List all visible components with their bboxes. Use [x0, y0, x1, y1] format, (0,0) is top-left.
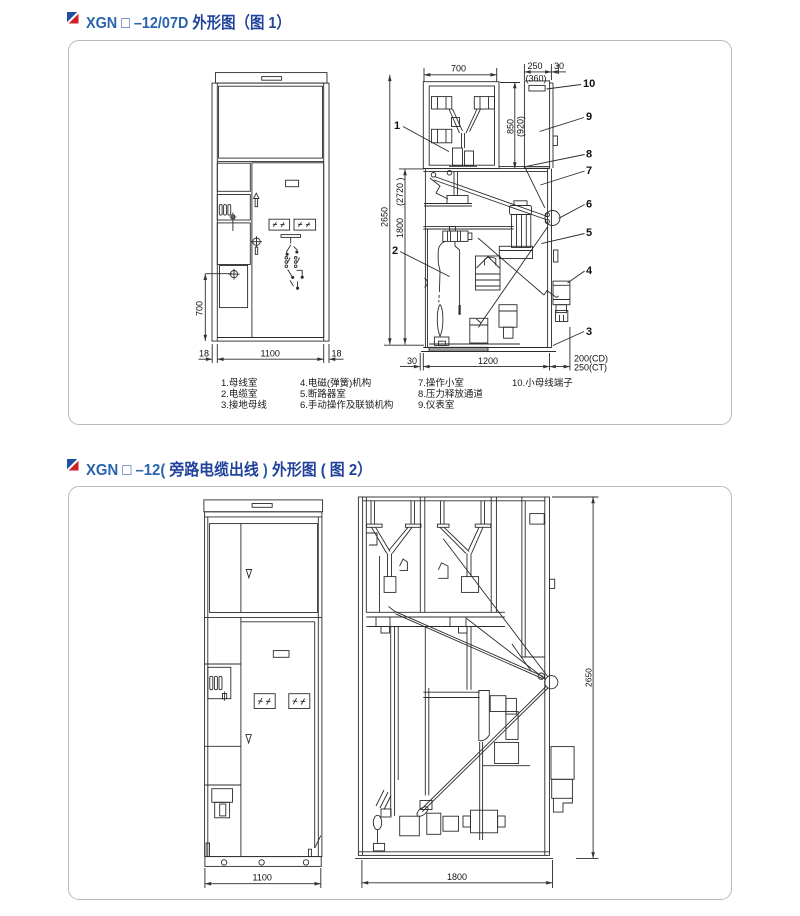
svg-text:1100: 1100	[261, 349, 280, 359]
svg-text:2650: 2650	[379, 207, 389, 227]
svg-text:250(CT): 250(CT)	[574, 363, 607, 373]
svg-text:18: 18	[332, 349, 342, 359]
svg-text:2650: 2650	[584, 668, 594, 687]
svg-text:2: 2	[392, 245, 398, 257]
svg-text:3: 3	[586, 326, 592, 338]
svg-text:30: 30	[554, 61, 564, 71]
svg-text:9: 9	[586, 111, 592, 123]
svg-text:4: 4	[586, 265, 593, 277]
svg-text:(2720 ): (2720 )	[395, 177, 405, 206]
svg-text:7: 7	[586, 165, 592, 177]
svg-text:8: 8	[586, 149, 592, 161]
svg-text:1100: 1100	[253, 873, 272, 883]
svg-text:700: 700	[451, 64, 466, 74]
svg-text:(360): (360)	[526, 74, 547, 84]
svg-text:1800: 1800	[447, 872, 467, 882]
svg-text:30: 30	[407, 356, 417, 366]
svg-text:1200: 1200	[478, 356, 498, 366]
svg-text:700: 700	[195, 301, 205, 316]
svg-text:10: 10	[583, 78, 595, 90]
svg-text:5: 5	[586, 227, 592, 239]
svg-text:18: 18	[199, 349, 209, 359]
svg-text:250: 250	[528, 61, 543, 71]
svg-text:6: 6	[586, 199, 592, 211]
svg-text:1800: 1800	[395, 218, 405, 238]
svg-text:850: 850	[506, 119, 516, 134]
svg-text:1: 1	[394, 120, 400, 132]
